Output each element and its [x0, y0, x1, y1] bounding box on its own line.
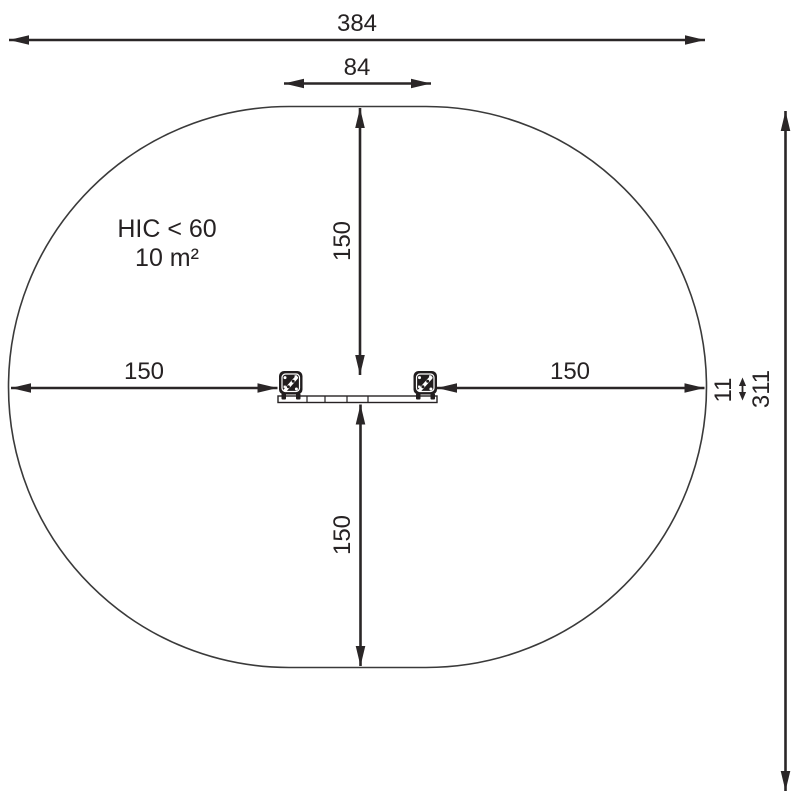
dim-equipment-width-label: 84	[344, 54, 371, 81]
dim-overall-width-label: 384	[337, 10, 377, 37]
safety-zone-diagram: 384 84 150 150 150 150	[0, 0, 800, 800]
dim-clearance-right-label: 150	[550, 358, 590, 385]
dim-beam-depth: 11	[710, 378, 746, 403]
dim-clearance-bottom-label: 150	[329, 515, 356, 555]
dim-clearance-left-label: 150	[124, 358, 164, 385]
dim-beam-depth-label: 11	[710, 378, 737, 403]
dim-overall-width: 384	[9, 10, 705, 40]
hic-note-line1: HIC < 60	[117, 215, 216, 243]
dim-beam-depth-arrow-up	[739, 378, 746, 387]
hic-note-line2: 10 m²	[135, 244, 199, 272]
diagram-svg: 384 84 150 150 150 150	[0, 0, 800, 800]
dim-equipment-width: 84	[284, 54, 431, 84]
dim-beam-depth-arrow-down	[739, 392, 746, 401]
dim-overall-depth-label: 311	[748, 370, 775, 408]
dim-overall-depth: 311	[748, 111, 786, 791]
dim-clearance-top-label: 150	[329, 221, 356, 261]
beam-body	[278, 396, 437, 403]
